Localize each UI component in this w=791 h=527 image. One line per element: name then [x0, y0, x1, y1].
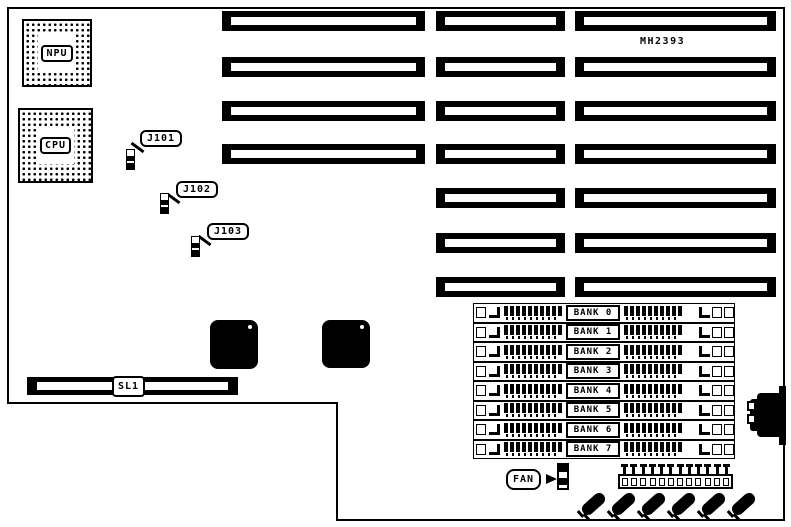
socket-latch	[489, 444, 500, 455]
socket-hole	[712, 385, 722, 396]
expansion-slot	[436, 233, 565, 253]
npu-chip: NPU	[22, 19, 92, 87]
simm-chip-row	[624, 423, 683, 437]
expansion-slot	[575, 188, 776, 208]
connector-cell	[695, 478, 701, 486]
expansion-slot	[222, 11, 425, 31]
simm-chip-row	[624, 403, 683, 417]
connector-pin	[723, 464, 730, 474]
ic-chip	[210, 320, 258, 369]
socket-latch	[489, 385, 500, 396]
expansion-slot	[436, 144, 565, 164]
bank-label: BANK 0	[566, 305, 620, 321]
fan-callout: FAN	[506, 469, 541, 490]
expansion-slot	[436, 101, 565, 121]
bank-label: BANK 7	[566, 441, 620, 457]
connector-cell	[714, 478, 720, 486]
simm-chip-row	[624, 345, 683, 359]
connector-cell	[631, 478, 637, 486]
expansion-slot	[222, 101, 425, 121]
connector-cell	[640, 478, 646, 486]
bank-label: BANK 4	[566, 383, 620, 399]
simm-chip-row	[504, 364, 563, 378]
jumper-header-j103	[191, 236, 200, 257]
ic-chip	[322, 320, 370, 368]
expansion-slot	[436, 277, 565, 297]
socket-latch	[699, 405, 710, 416]
memory-bank-socket: BANK 0	[473, 303, 735, 323]
expansion-slot	[575, 144, 776, 164]
simm-chip-row	[624, 306, 683, 320]
angled-component	[698, 492, 727, 519]
expansion-slot	[222, 144, 425, 164]
socket-latch	[699, 307, 710, 318]
socket-hole	[712, 444, 722, 455]
socket-latch	[489, 307, 500, 318]
expansion-slot	[575, 277, 776, 297]
simm-chip-row	[504, 345, 563, 359]
socket-latch	[489, 366, 500, 377]
expansion-slot	[222, 57, 425, 77]
simm-chip-row	[504, 306, 563, 320]
sl1-label: SL1	[112, 376, 145, 397]
socket-hole	[476, 444, 486, 455]
bank-label: BANK 2	[566, 344, 620, 360]
socket-latch	[699, 346, 710, 357]
socket-hole	[712, 346, 722, 357]
angled-component	[638, 492, 667, 519]
expansion-slot	[575, 57, 776, 77]
socket-hole	[712, 327, 722, 338]
connector-pin	[630, 464, 637, 474]
angled-component	[578, 492, 607, 519]
memory-bank-socket: BANK 7	[473, 440, 735, 460]
connector-cell	[668, 478, 674, 486]
bank-label: BANK 6	[566, 422, 620, 438]
connector-pin	[686, 464, 693, 474]
socket-hole	[476, 346, 486, 357]
memory-bank-socket: BANK 4	[473, 381, 735, 401]
connector-pin	[695, 464, 702, 474]
memory-bank-socket: BANK 2	[473, 342, 735, 362]
socket-latch	[489, 405, 500, 416]
socket-hole	[476, 405, 486, 416]
socket-hole	[724, 405, 734, 416]
npu-label: NPU	[41, 45, 72, 62]
simm-chip-row	[504, 384, 563, 398]
socket-hole	[724, 346, 734, 357]
angled-component	[728, 492, 757, 519]
socket-hole	[712, 424, 722, 435]
socket-latch	[699, 327, 710, 338]
jumper-callout-j101: J101	[140, 130, 182, 147]
connector-pin	[621, 464, 628, 474]
connector-cell	[677, 478, 683, 486]
jumper-header-j101	[126, 149, 135, 170]
expansion-slot	[575, 233, 776, 253]
connector-pin	[704, 464, 711, 474]
socket-hole	[724, 366, 734, 377]
socket-latch	[699, 366, 710, 377]
socket-hole	[712, 366, 722, 377]
pin1-dot	[248, 325, 252, 329]
connector-pin	[714, 464, 721, 474]
connector-notch	[747, 401, 756, 411]
connector-pin	[658, 464, 665, 474]
keyboard-connector	[757, 393, 781, 437]
bank-label: BANK 5	[566, 402, 620, 418]
socket-hole	[724, 385, 734, 396]
connector-body	[618, 474, 733, 489]
expansion-slot	[575, 11, 776, 31]
socket-latch	[699, 385, 710, 396]
connector-cell	[622, 478, 628, 486]
connector-cell	[686, 478, 692, 486]
cpu-label: CPU	[40, 137, 71, 154]
jumper-callout-j103: J103	[207, 223, 249, 240]
motherboard-diagram: { "diagram": { "part_number": "MH2393", …	[0, 0, 791, 527]
power-connector	[618, 464, 733, 489]
simm-chip-row	[504, 423, 563, 437]
socket-hole	[476, 327, 486, 338]
bank-label: BANK 1	[566, 324, 620, 340]
connector-pin	[649, 464, 656, 474]
jumper-header-j102	[160, 193, 169, 214]
socket-hole	[476, 366, 486, 377]
cpu-chip-center: CPU	[37, 127, 74, 164]
connector-cell	[659, 478, 665, 486]
simm-chip-row	[624, 325, 683, 339]
pin1-dot	[360, 325, 364, 329]
connector-notch	[747, 414, 756, 424]
simm-chip-row	[504, 442, 563, 456]
simm-chip-row	[624, 384, 683, 398]
connector-pin-row	[618, 464, 733, 474]
memory-bank-socket: BANK 1	[473, 323, 735, 343]
connector-pin	[667, 464, 674, 474]
connector-pin	[677, 464, 684, 474]
memory-bank-socket: BANK 3	[473, 362, 735, 382]
expansion-slot	[436, 188, 565, 208]
cpu-chip: CPU	[18, 108, 93, 183]
angled-component	[608, 492, 637, 519]
simm-chip-row	[624, 364, 683, 378]
npu-chip-center: NPU	[38, 34, 76, 72]
socket-hole	[476, 424, 486, 435]
jumper-callout-j102: J102	[176, 181, 218, 198]
connector-cell	[723, 478, 729, 486]
socket-latch	[699, 444, 710, 455]
socket-latch	[489, 424, 500, 435]
fan-header	[557, 463, 569, 490]
expansion-slot	[436, 57, 565, 77]
connector-cell	[705, 478, 711, 486]
socket-hole	[476, 307, 486, 318]
bank-label: BANK 3	[566, 363, 620, 379]
socket-latch	[699, 424, 710, 435]
simm-chip-row	[504, 325, 563, 339]
callout-arrow	[546, 474, 557, 484]
simm-chip-row	[504, 403, 563, 417]
socket-hole	[476, 385, 486, 396]
part-number: MH2393	[640, 36, 685, 47]
socket-hole	[724, 444, 734, 455]
simm-chip-row	[624, 442, 683, 456]
socket-latch	[489, 346, 500, 357]
expansion-slot	[436, 11, 565, 31]
socket-hole	[712, 307, 722, 318]
angled-component	[668, 492, 697, 519]
connector-pin	[640, 464, 647, 474]
expansion-slot	[575, 101, 776, 121]
socket-latch	[489, 327, 500, 338]
socket-hole	[724, 307, 734, 318]
connector-cell	[650, 478, 656, 486]
socket-hole	[712, 405, 722, 416]
socket-hole	[724, 327, 734, 338]
memory-bank-socket: BANK 6	[473, 420, 735, 440]
memory-bank-socket: BANK 5	[473, 401, 735, 421]
socket-hole	[724, 424, 734, 435]
